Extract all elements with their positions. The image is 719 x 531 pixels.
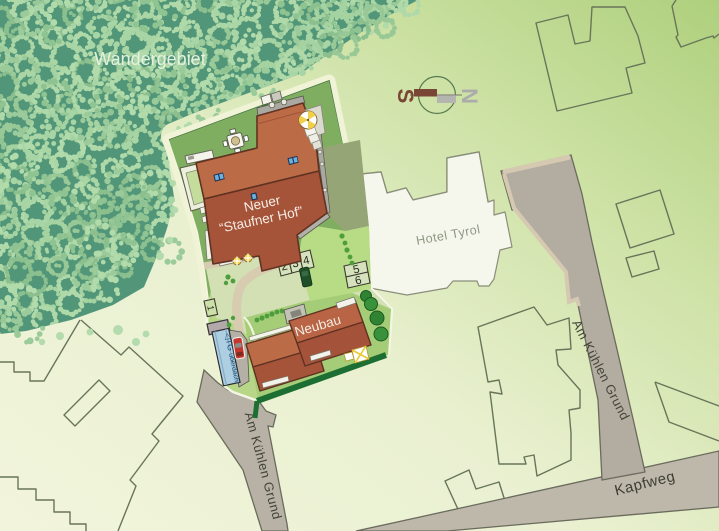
svg-text:N: N [457, 88, 482, 104]
svg-text:S: S [393, 89, 418, 104]
svg-text:Wandergebiet: Wandergebiet [94, 49, 205, 69]
